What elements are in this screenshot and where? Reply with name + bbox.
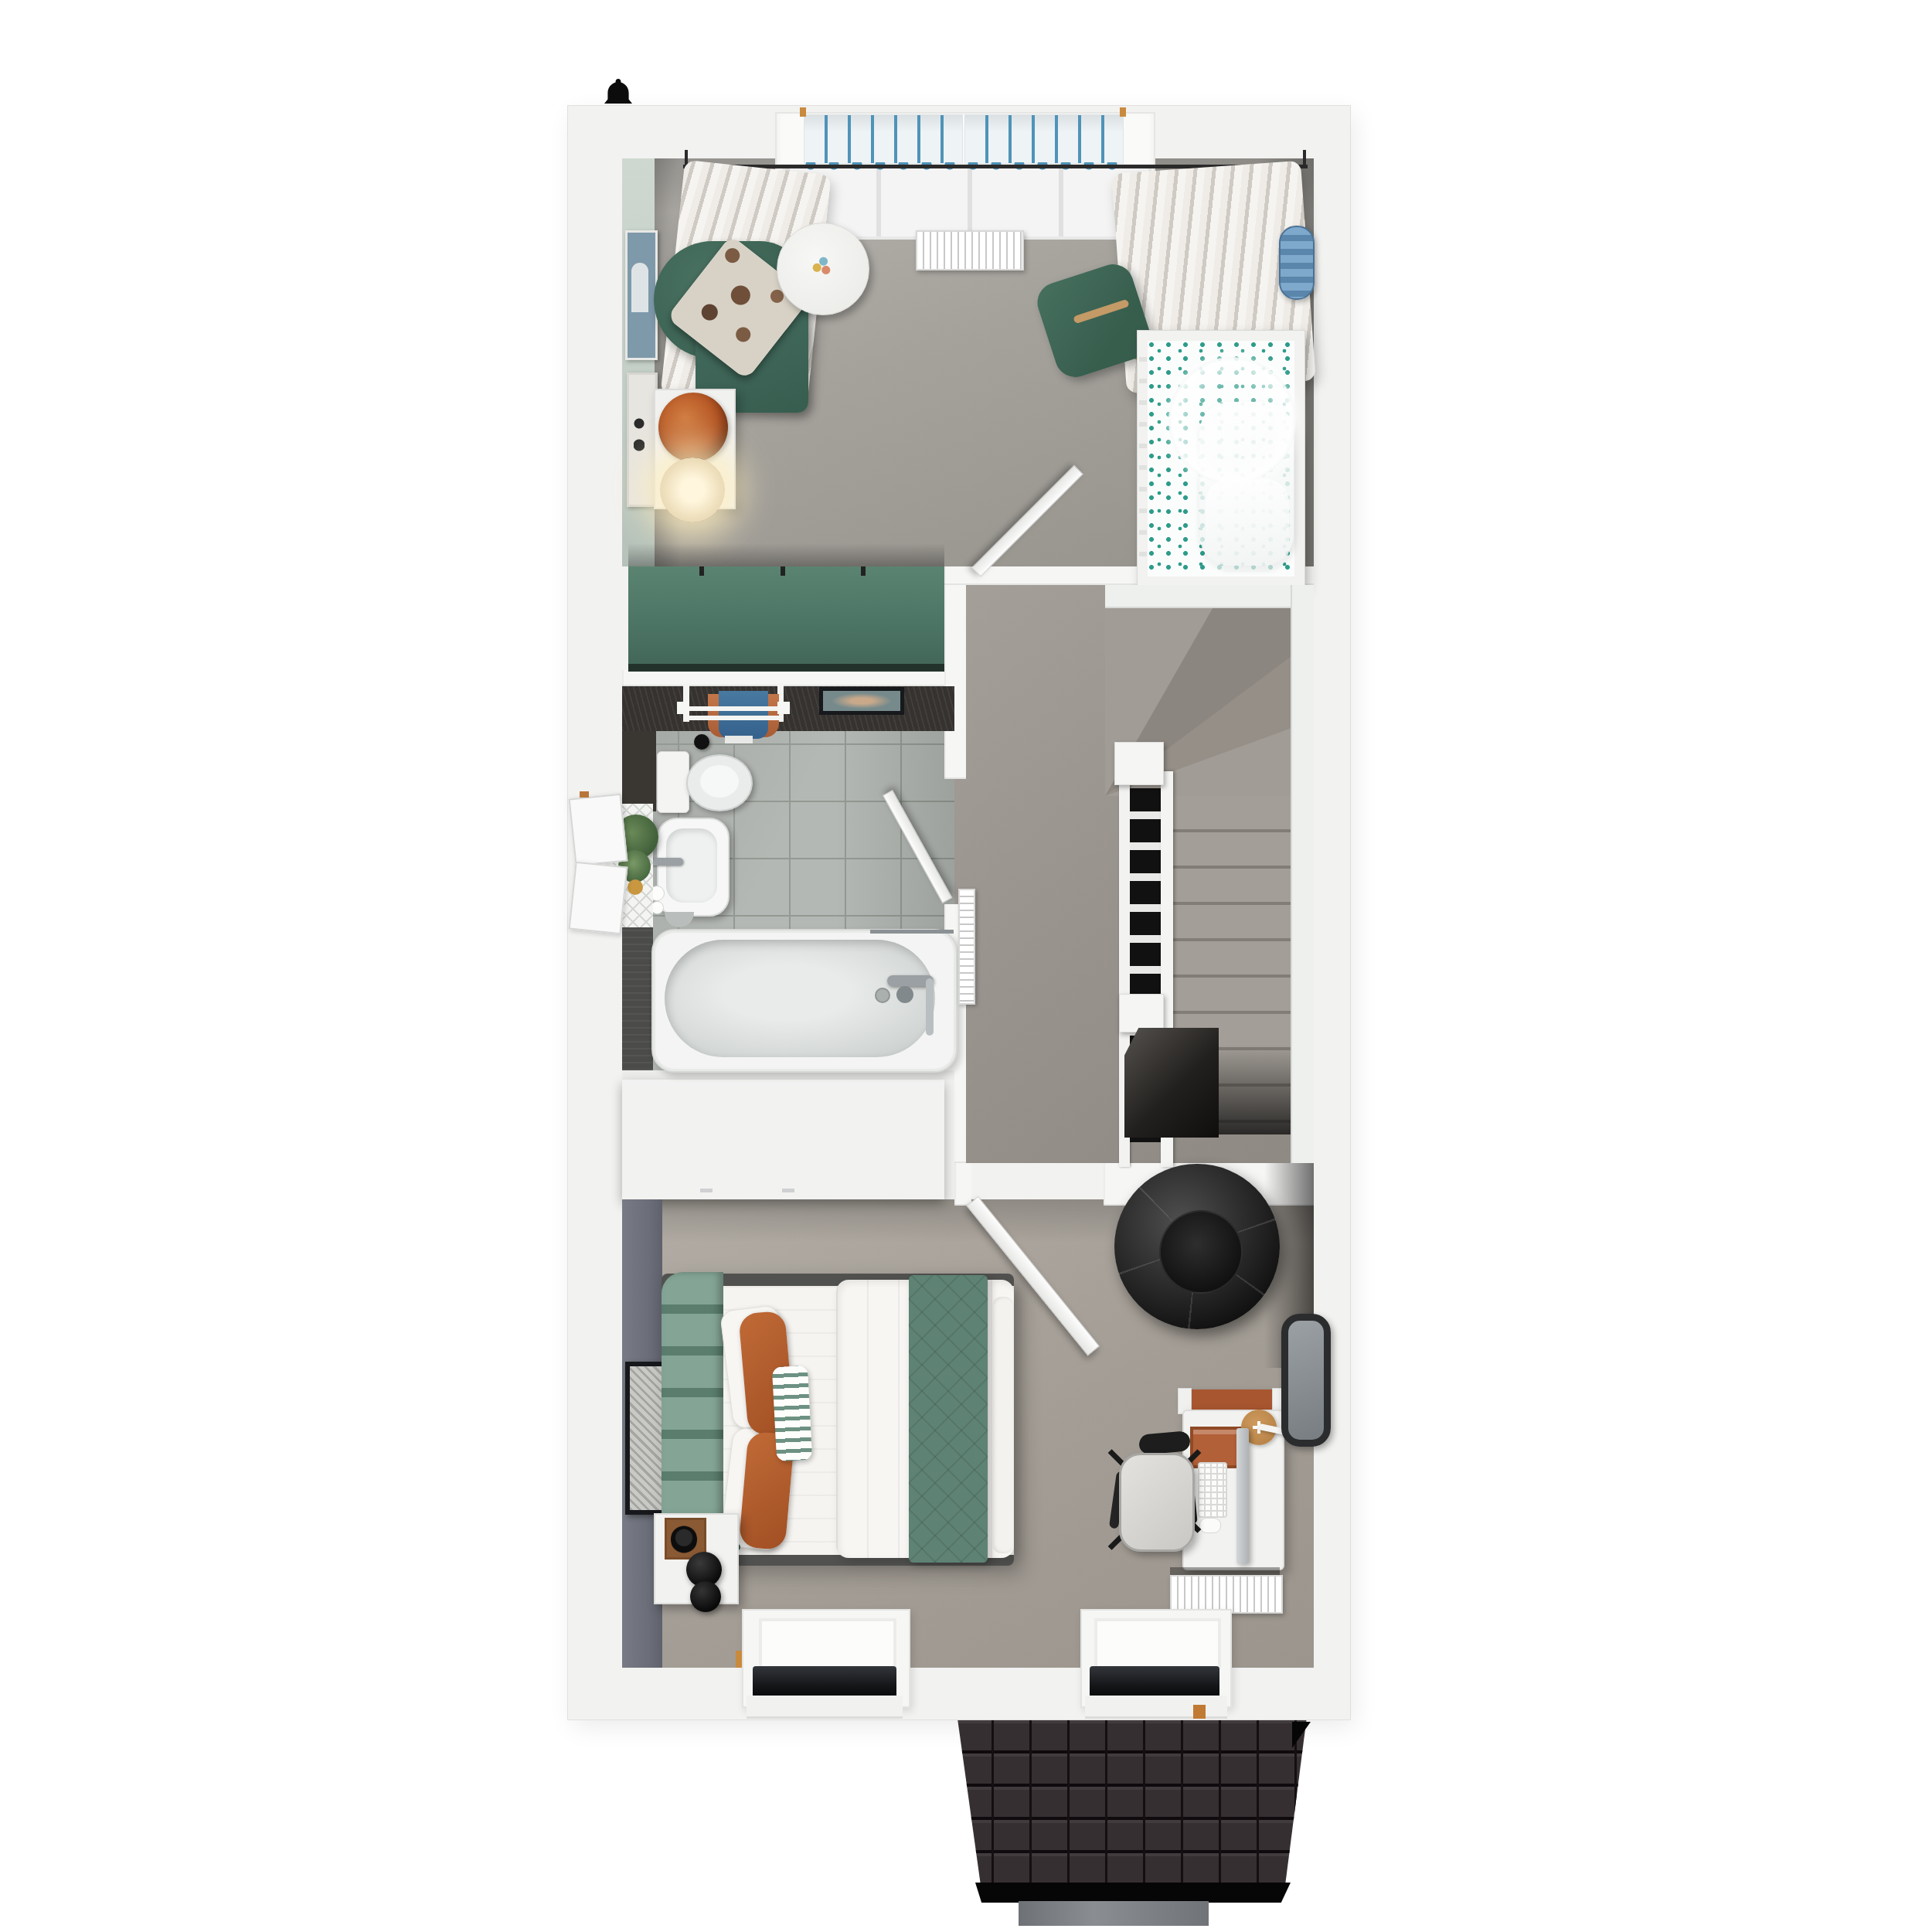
landing-radiator xyxy=(958,889,975,1005)
bathtub-inner xyxy=(665,940,935,1057)
cot-canopy-ring xyxy=(1168,357,1296,485)
bathroom-wall-print xyxy=(819,687,904,715)
toilet-brush xyxy=(694,734,709,750)
wardrobe-handle-2 xyxy=(782,1189,794,1192)
nursery-radiator xyxy=(916,230,1024,270)
timber-tick-right xyxy=(1193,1705,1206,1719)
dormer-left-glazing xyxy=(753,1666,896,1699)
roman-blind-right xyxy=(964,114,1124,164)
basin-bowl xyxy=(666,828,717,903)
stair-trim-right xyxy=(1291,585,1314,1163)
desk-back-rail xyxy=(1179,1389,1283,1411)
monitor-edge xyxy=(1236,1428,1249,1564)
towel-ladder-bar-1 xyxy=(683,706,784,711)
bath-drain xyxy=(875,988,890,1003)
roof-slope xyxy=(956,1720,1310,1886)
teal-wardrobe-shadow xyxy=(628,543,944,566)
roof-gutter xyxy=(1019,1901,1209,1926)
roman-blind-left xyxy=(804,114,963,164)
window-corner-timber-right xyxy=(1120,107,1126,117)
chair-seat xyxy=(1119,1453,1195,1552)
casement-window-top xyxy=(569,794,628,867)
toilet-cistern xyxy=(657,751,689,813)
casement-window-bottom xyxy=(569,862,628,935)
wardrobe-tick-2 xyxy=(781,566,785,576)
wall-landing-bedroom-left xyxy=(954,1163,971,1206)
towel-ladder-bracket-left xyxy=(677,702,689,714)
bedroom-radiator xyxy=(1170,1575,1283,1614)
timber-tick-left xyxy=(736,1651,742,1668)
dormer-right-glazing xyxy=(1090,1666,1219,1699)
dormer-right-reveal xyxy=(1094,1618,1221,1669)
headphones xyxy=(671,1522,697,1556)
charcoal-wardrobe xyxy=(622,1080,944,1199)
knot-cushion xyxy=(658,393,728,462)
bathroom-dark-counter xyxy=(622,731,656,811)
nursery-wall-art-blue-figure xyxy=(631,263,648,312)
towel-ladder-bar-2 xyxy=(683,716,784,720)
stairwell-void-lower xyxy=(1124,1028,1219,1138)
bath-wall-strip xyxy=(622,927,653,1070)
green-throw-runner xyxy=(909,1275,988,1563)
towel-tag xyxy=(725,736,753,743)
towel-blue xyxy=(719,691,768,739)
amber-jar xyxy=(628,879,643,895)
newel-post-bottom xyxy=(1119,994,1164,1032)
shower-riser-rail xyxy=(926,978,934,1036)
roof-fascia-band xyxy=(975,1883,1291,1903)
keyboard xyxy=(1198,1462,1227,1518)
shower-screen xyxy=(870,930,954,934)
floor-plan-scene xyxy=(0,0,1932,1932)
bean-bag-inner-fold xyxy=(1159,1210,1243,1294)
dormer-left-ledge xyxy=(747,1696,903,1719)
mouse xyxy=(1199,1518,1221,1533)
blue-striped-pouf xyxy=(1279,226,1315,300)
wardrobe-tick-3 xyxy=(861,566,866,576)
newel-post-top xyxy=(1114,742,1164,785)
duvet-fold-right xyxy=(992,1297,1014,1553)
stair-trim-top xyxy=(1105,585,1292,608)
teal-wardrobe xyxy=(628,566,944,672)
alarm-bell-icon xyxy=(601,77,635,108)
cot-canopy-tail xyxy=(1206,479,1289,572)
towel-ladder-bracket-right xyxy=(777,702,790,714)
bath-tap-knob xyxy=(896,986,913,1003)
toilet-seat-inner xyxy=(700,765,739,798)
table-lamp-lit xyxy=(660,457,725,522)
wall-bathroom-landing-upper xyxy=(944,585,966,779)
cot-rail-ticks xyxy=(1139,340,1147,556)
wall-mirror xyxy=(1281,1314,1331,1447)
nursery-wall-art-white-marks xyxy=(634,417,645,457)
wardrobe-tick-1 xyxy=(699,566,704,576)
casement-dowel xyxy=(580,791,589,798)
window-corner-timber-left xyxy=(800,107,806,117)
dormer-left-reveal xyxy=(759,1618,896,1669)
sphere-lamp-2 xyxy=(690,1581,721,1612)
wall-sliver-cabinet xyxy=(944,1080,954,1199)
curtain-rod-pin-right xyxy=(1303,150,1306,167)
wardrobe-handle-1 xyxy=(700,1189,713,1192)
dormer-right-ledge xyxy=(1085,1696,1227,1719)
pillow-green-striped xyxy=(772,1366,812,1461)
